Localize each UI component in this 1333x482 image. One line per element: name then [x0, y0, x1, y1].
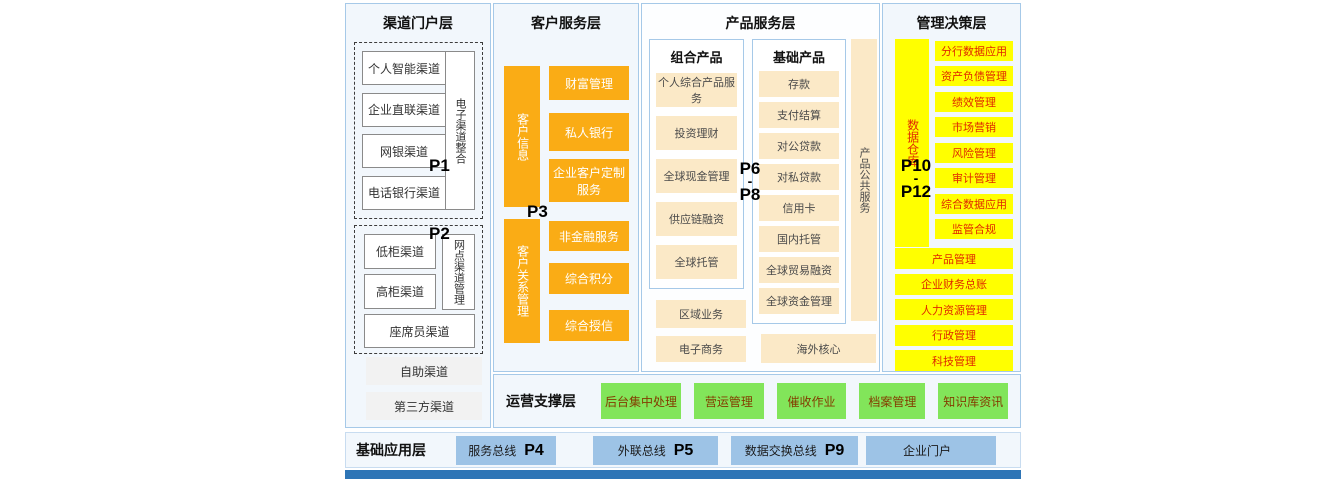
- combo-product-title: 组合产品: [650, 40, 743, 66]
- product-public-service-bar: 产品公共服务: [851, 39, 877, 321]
- channel-layer-panel: 渠道门户层 个人智能渠道 企业直联渠道 网银渠道 电话银行渠道 电子渠道整合 P…: [345, 3, 491, 428]
- operation-layer-panel: 运营支撑层 后台集中处理 营运管理 催收作业 档案管理 知识库资讯: [493, 374, 1021, 428]
- p6-p8-label: P6 - P8: [734, 160, 766, 203]
- management-box: 市场营销: [935, 117, 1013, 137]
- branch-channel-management-bar: 网点渠道管理: [442, 234, 475, 310]
- foundation-layer-panel: 基础应用层 服务总线 P4 外联总线 P5 数据交换总线 P9 企业门户: [345, 432, 1021, 468]
- customer-service-box: 私人银行: [549, 113, 629, 151]
- foundation-box: 服务总线 P4: [456, 436, 556, 465]
- management-box: 资产负债管理: [935, 66, 1013, 86]
- product-box: 全球资金管理: [759, 288, 839, 314]
- foundation-box: 企业门户: [866, 436, 996, 465]
- product-box: 全球托管: [656, 245, 737, 279]
- management-box: 行政管理: [895, 325, 1013, 346]
- p4-label: P4: [524, 442, 544, 460]
- product-box: 支付结算: [759, 102, 839, 128]
- management-box: 风险管理: [935, 143, 1013, 163]
- product-box: 国内托管: [759, 226, 839, 252]
- foundation-box: 外联总线 P5: [593, 436, 718, 465]
- combo-product-panel: 组合产品 个人综合产品服务 投资理财 全球现金管理 供应链融资 全球托管: [649, 39, 744, 289]
- management-box: 分行数据应用: [935, 41, 1013, 61]
- management-box: 人力资源管理: [895, 299, 1013, 320]
- customer-service-box: 企业客户定制服务: [549, 159, 629, 202]
- customer-service-box: 综合积分: [549, 263, 629, 294]
- p1-label: P1: [429, 156, 450, 176]
- management-box: 科技管理: [895, 350, 1013, 371]
- electronic-channel-group: 个人智能渠道 企业直联渠道 网银渠道 电话银行渠道 电子渠道整合: [354, 42, 483, 219]
- management-box: 绩效管理: [935, 92, 1013, 112]
- operation-box: 知识库资讯: [938, 383, 1008, 419]
- product-box: 全球贸易融资: [759, 257, 839, 283]
- customer-service-box: 财富管理: [549, 66, 629, 100]
- channel-box: 企业直联渠道: [362, 93, 446, 127]
- p12-label: P12: [891, 183, 941, 201]
- p9-label: P9: [825, 442, 845, 460]
- management-box: 企业财务总账: [895, 274, 1013, 295]
- product-box: 对公贷款: [759, 133, 839, 159]
- channel-layer-title: 渠道门户层: [346, 4, 490, 33]
- foundation-box: 数据交换总线 P9: [731, 436, 858, 465]
- electronic-channel-integration-bar: 电子渠道整合: [445, 51, 475, 210]
- channel-box: 电话银行渠道: [362, 176, 446, 210]
- product-layer-panel: 产品服务层 组合产品 个人综合产品服务 投资理财 全球现金管理 供应链融资 全球…: [641, 3, 880, 372]
- customer-service-box: 非金融服务: [549, 221, 629, 251]
- customer-layer-panel: 客户服务层 客户信息 财富管理 私人银行 企业客户定制服务 P3 客户关系管理 …: [493, 3, 639, 372]
- operation-layer-title: 运营支撑层: [506, 375, 576, 427]
- branch-channel-group: 低柜渠道 高柜渠道 网点渠道管理 座席员渠道: [354, 225, 483, 354]
- foundation-box-label: 服务总线: [468, 442, 516, 459]
- customer-layer-title: 客户服务层: [494, 4, 638, 33]
- foundation-box-label: 数据交换总线: [745, 442, 817, 459]
- management-box: 产品管理: [895, 248, 1013, 269]
- product-layer-title: 产品服务层: [642, 4, 879, 33]
- bottom-accent-bar: [345, 470, 1021, 479]
- channel-box: 座席员渠道: [364, 314, 475, 348]
- product-box: 全球现金管理: [656, 159, 737, 193]
- basic-product-panel: 基础产品 存款 支付结算 对公贷款 对私贷款 信用卡 国内托管 全球贸易融资 全…: [752, 39, 846, 324]
- management-box: 审计管理: [935, 168, 1013, 188]
- customer-info-bar: 客户信息: [504, 66, 540, 207]
- foundation-box-label: 外联总线: [618, 442, 666, 459]
- management-box: 综合数据应用: [935, 194, 1013, 214]
- operation-box: 催收作业: [777, 383, 847, 419]
- channel-box: 第三方渠道: [366, 392, 482, 420]
- channel-box: 高柜渠道: [364, 274, 436, 309]
- management-box: 监管合规: [935, 219, 1013, 239]
- customer-relation-bar: 客户关系管理: [504, 219, 540, 343]
- operation-box: 档案管理: [859, 383, 925, 419]
- product-box: 电子商务: [656, 336, 746, 362]
- overseas-core-box: 海外核心: [761, 334, 876, 363]
- p10-p12-label: P10 - P12: [891, 157, 941, 200]
- p8-label: P8: [734, 186, 766, 204]
- operation-box: 后台集中处理: [601, 383, 681, 419]
- channel-box: 个人智能渠道: [362, 51, 446, 85]
- p5-label: P5: [674, 442, 694, 460]
- p2-label: P2: [429, 224, 450, 244]
- product-box: 对私贷款: [759, 164, 839, 190]
- p3-label: P3: [527, 202, 548, 222]
- customer-service-box: 综合授信: [549, 310, 629, 341]
- data-warehouse-bar: 数据仓库: [895, 39, 929, 247]
- foundation-box-label: 企业门户: [903, 442, 951, 459]
- product-box: 信用卡: [759, 195, 839, 221]
- diagram-root: 渠道门户层 个人智能渠道 企业直联渠道 网银渠道 电话银行渠道 电子渠道整合 P…: [345, 3, 1021, 479]
- product-box: 存款: [759, 71, 839, 97]
- basic-product-title: 基础产品: [753, 40, 845, 66]
- product-box: 投资理财: [656, 116, 737, 150]
- product-box: 供应链融资: [656, 202, 737, 236]
- channel-box: 自助渠道: [366, 357, 482, 385]
- foundation-layer-title: 基础应用层: [356, 433, 426, 467]
- product-box: 个人综合产品服务: [656, 73, 737, 107]
- management-layer-panel: 管理决策层 数据仓库 P10 - P12 分行数据应用 资产负债管理 绩效管理 …: [882, 3, 1021, 372]
- product-box: 区域业务: [656, 300, 746, 328]
- management-layer-title: 管理决策层: [883, 4, 1020, 33]
- architecture-diagram: 渠道门户层 个人智能渠道 企业直联渠道 网银渠道 电话银行渠道 电子渠道整合 P…: [0, 0, 1333, 482]
- operation-box: 营运管理: [694, 383, 764, 419]
- channel-box: 低柜渠道: [364, 234, 436, 269]
